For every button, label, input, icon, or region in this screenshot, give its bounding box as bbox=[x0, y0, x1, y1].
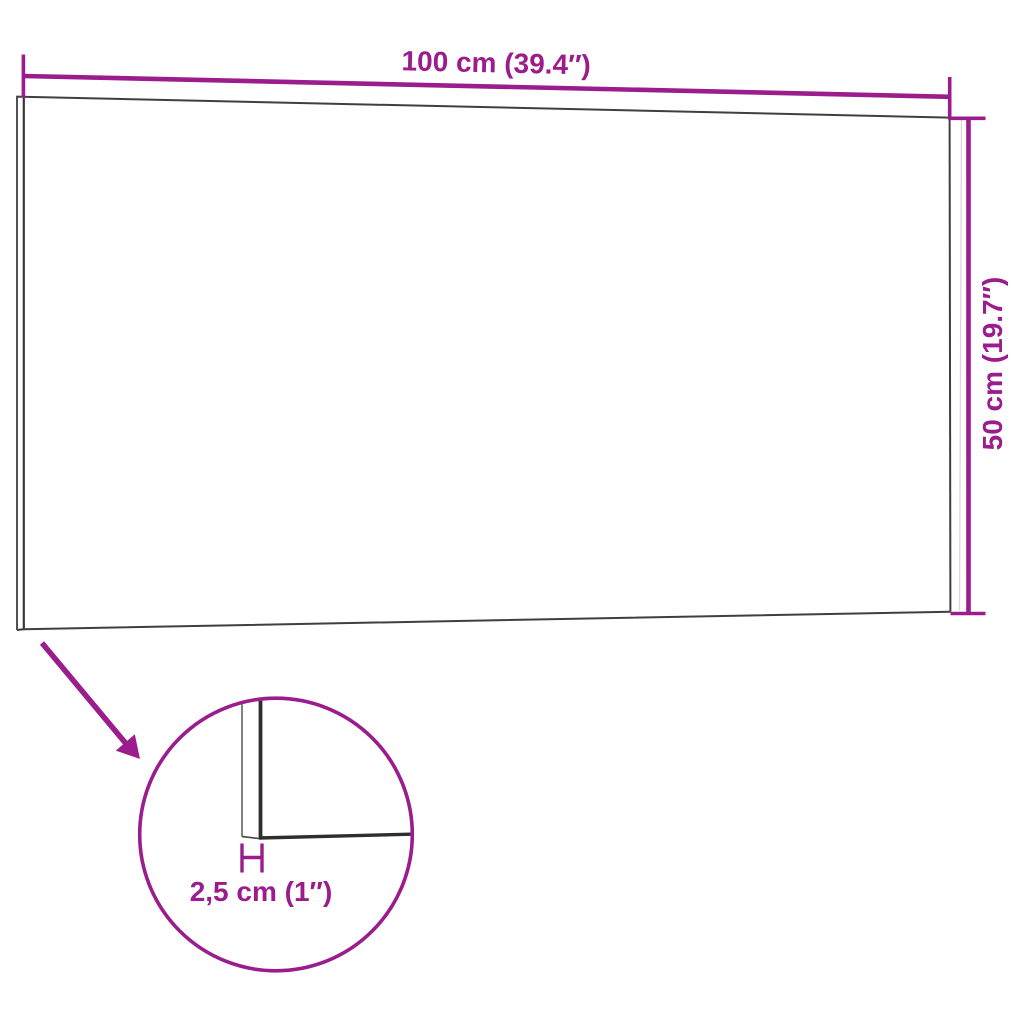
svg-text:100 cm (39.4″): 100 cm (39.4″) bbox=[401, 45, 591, 80]
svg-text:2,5 cm (1″): 2,5 cm (1″) bbox=[190, 876, 333, 907]
svg-text:50 cm (19.7″): 50 cm (19.7″) bbox=[977, 277, 1008, 451]
